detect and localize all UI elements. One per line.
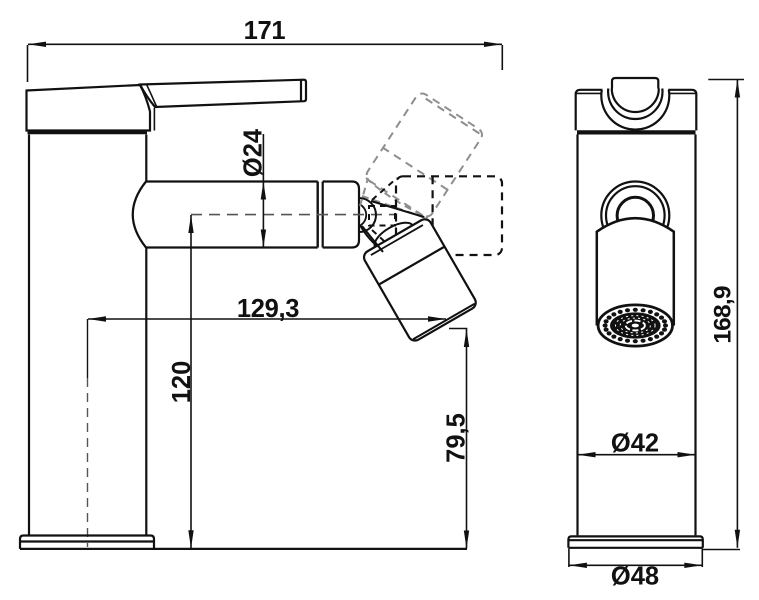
svg-text:120: 120: [168, 361, 196, 404]
svg-text:168,9: 168,9: [710, 286, 737, 343]
svg-text:Ø48: Ø48: [611, 563, 659, 591]
svg-text:Ø42: Ø42: [611, 430, 659, 458]
svg-text:79,5: 79,5: [443, 413, 471, 463]
svg-text:Ø24: Ø24: [240, 128, 268, 177]
svg-text:129,3: 129,3: [237, 295, 299, 323]
svg-text:171: 171: [244, 17, 286, 45]
